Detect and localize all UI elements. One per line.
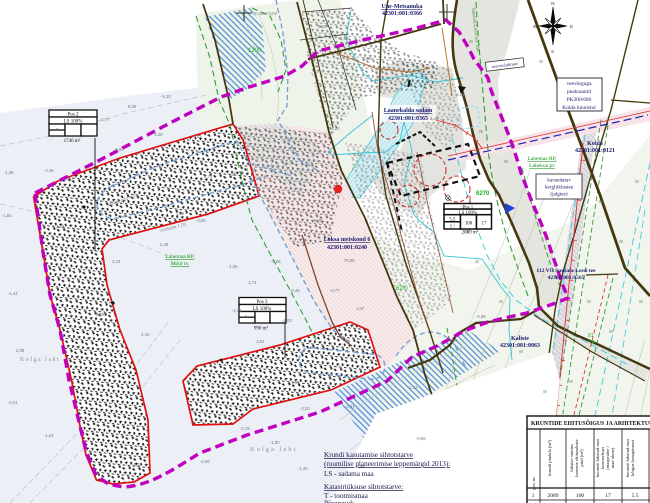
svg-text:2,48: 2,48	[430, 116, 439, 121]
svg-text:S: S	[551, 49, 554, 54]
svg-text:-4,03: -4,03	[282, 318, 292, 323]
svg-text:-1,80: -1,80	[270, 440, 280, 445]
svg-text:17: 17	[482, 222, 487, 227]
svg-text:-2,06: -2,06	[200, 459, 210, 464]
svg-text:Krundi kasutamise sihtotstarve: Krundi kasutamise sihtotstarve	[324, 451, 413, 459]
svg-text:-0,86: -0,86	[271, 259, 281, 264]
svg-text:Kaliste: Kaliste	[511, 336, 529, 342]
svg-text:-2,74: -2,74	[247, 280, 257, 285]
svg-text:2,48: 2,48	[160, 242, 169, 247]
svg-text:-4,28: -4,28	[153, 132, 163, 137]
svg-text:Uue-Metsanuka: Uue-Metsanuka	[381, 4, 422, 10]
svg-text:-4,04: -4,04	[302, 345, 312, 350]
svg-text:5,5: 5,5	[449, 218, 456, 223]
svg-text:-1,10: -1,10	[140, 332, 150, 337]
svg-text:-4,01: -4,01	[255, 339, 265, 344]
svg-text:-3,60: -3,60	[114, 147, 124, 152]
svg-text:(ruumilise planeerimise leppem: (ruumilise planeerimise leppemärgid 2013…	[324, 460, 450, 468]
svg-text:E: E	[570, 24, 573, 29]
svg-text:6,02: 6,02	[318, 24, 327, 29]
svg-text:112 VO Suusala-Leesi tee: 112 VO Suusala-Leesi tee	[536, 268, 596, 274]
svg-text:42301:001:0365: 42301:001:0365	[388, 116, 428, 122]
svg-text:17: 17	[605, 493, 611, 499]
svg-text:1,05: 1,05	[176, 211, 185, 216]
svg-text:-4,44: -4,44	[132, 462, 142, 467]
svg-text:-0,86: -0,86	[362, 56, 372, 61]
svg-text:-4,02: -4,02	[64, 177, 74, 182]
svg-text:krundi pindala (m²): krundi pindala (m²)	[547, 440, 552, 476]
svg-text:- 5,10: - 5,10	[160, 94, 171, 99]
svg-text:-2,78: -2,78	[240, 426, 250, 431]
svg-text:2,23: 2,23	[112, 259, 121, 264]
svg-text:kavandatav: kavandatav	[547, 178, 571, 184]
svg-text:70,05: 70,05	[344, 258, 355, 263]
svg-text:-1,30: -1,30	[298, 466, 308, 471]
svg-text:veevõrguga: veevõrguga	[566, 81, 592, 87]
svg-text:4,05: 4,05	[96, 312, 105, 317]
svg-text:kergliiklustee: kergliiklustee	[545, 185, 574, 191]
svg-text:Lahemaa RP,: Lahemaa RP,	[527, 156, 557, 162]
svg-text:2089 m²: 2089 m²	[462, 230, 479, 236]
svg-text:-2,46: -2,46	[44, 168, 54, 173]
svg-text:-4,22: -4,22	[330, 126, 340, 131]
svg-text:-1,44: -1,44	[8, 291, 18, 296]
svg-text:1: 1	[532, 493, 535, 499]
svg-text:2,08: 2,08	[16, 348, 25, 353]
svg-text:42301:001:0240: 42301:001:0240	[327, 245, 367, 251]
svg-text:kõrgus (maapinnast: kõrgus (maapinnast	[630, 439, 635, 476]
svg-text:-0,46: -0,46	[290, 288, 300, 293]
svg-text:Müür tv.: Müür tv.	[171, 261, 191, 267]
svg-text:1 /: 1 /	[450, 225, 456, 230]
svg-text:6,46: 6,46	[314, 218, 323, 223]
svg-text:pos. nr.: pos. nr.	[531, 476, 536, 489]
svg-text:42301:001:0366: 42301:001:0366	[382, 11, 422, 17]
svg-text:-1,83: -1,83	[352, 152, 362, 157]
svg-text:5.5: 5.5	[632, 493, 639, 499]
svg-text:2,75: 2,75	[204, 174, 213, 179]
svg-text:1,07: 1,07	[356, 306, 365, 311]
svg-text:pind (m²): pind (m²)	[579, 449, 584, 467]
svg-text:Loksa metskond 6: Loksa metskond 6	[324, 237, 371, 243]
svg-text:Laanekalda sadam: Laanekalda sadam	[384, 108, 433, 114]
svg-text:Piirangud:: Piirangud:	[324, 500, 354, 503]
svg-text:1200: 1200	[248, 48, 262, 54]
svg-text:N: N	[551, 1, 554, 6]
svg-text:100: 100	[576, 493, 585, 499]
svg-text:-0,41: -0,41	[8, 400, 18, 405]
svg-text:-3,02: -3,02	[448, 338, 458, 343]
svg-text:-2,77: -2,77	[100, 117, 110, 122]
svg-text:Kolda: Kolda	[587, 141, 603, 147]
svg-text:-0,77: -0,77	[330, 288, 340, 293]
svg-text:-0,68: -0,68	[416, 436, 426, 441]
svg-text:PK300/600: PK300/600	[567, 97, 592, 103]
svg-text:8,05: 8,05	[128, 104, 137, 109]
svg-text:KRUNTIDE EHITUSÕIGUS JA ARHITE: KRUNTIDE EHITUSÕIGUS JA ARHITEKTUUR	[531, 419, 650, 427]
svg-text:Kolga laht: Kolga laht	[20, 357, 60, 363]
svg-text:-1,33: -1,33	[408, 385, 418, 390]
svg-text:-1,64: -1,64	[44, 433, 54, 438]
svg-text:42301:001:0063: 42301:001:0063	[500, 343, 540, 349]
svg-text:-1,05: -1,05	[290, 380, 300, 385]
svg-text:-0,98: -0,98	[476, 314, 486, 319]
svg-text:peakraanid: peakraanid	[567, 89, 591, 95]
svg-text:LS 100%: LS 100%	[64, 120, 83, 125]
svg-text:2,23: 2,23	[56, 224, 65, 229]
svg-text:maa-alune): maa-alune)	[610, 447, 615, 468]
svg-text:-3,20: -3,20	[300, 406, 310, 411]
svg-text:4,93: 4,93	[340, 36, 349, 41]
svg-text:Pos 1: Pos 1	[462, 205, 473, 210]
svg-text:6270: 6270	[476, 191, 490, 197]
svg-text:X=6007100: X=6007100	[254, 11, 278, 16]
svg-text:LS 100%: LS 100%	[253, 307, 272, 312]
svg-text:-2,44: -2,44	[232, 308, 242, 313]
svg-text:Pos 2: Pos 2	[68, 113, 79, 118]
svg-text:74: 74	[589, 340, 595, 346]
svg-text:Kolga laht: Kolga laht	[250, 446, 297, 453]
svg-text:(jalgtee): (jalgtee)	[550, 191, 568, 198]
svg-text:Pos 3: Pos 3	[257, 300, 268, 305]
svg-text:-4,01: -4,01	[455, 92, 465, 97]
svg-text:-2,31: -2,31	[345, 404, 355, 409]
svg-text:Lahekua pv: Lahekua pv	[529, 163, 555, 169]
svg-text:-1,36: -1,36	[4, 170, 14, 175]
svg-text:-3,43: -3,43	[192, 134, 202, 139]
svg-text:Kolda kinnistul: Kolda kinnistul	[562, 105, 596, 111]
svg-text:81: 81	[588, 333, 594, 339]
svg-text:LS 100%: LS 100%	[459, 211, 477, 216]
svg-text:-1,08: -1,08	[228, 264, 238, 269]
svg-text:2089: 2089	[547, 493, 558, 499]
svg-text:Lahemaa RP,: Lahemaa RP,	[165, 254, 195, 260]
svg-text:Katastriüksuse sihtotstarve:: Katastriüksuse sihtotstarve:	[324, 483, 403, 491]
svg-text:LS - sadama maa: LS - sadama maa	[324, 470, 375, 478]
svg-text:-1,55: -1,55	[2, 213, 12, 218]
svg-text:62/0: 62/0	[396, 286, 408, 292]
svg-text:42301:001:0121: 42301:001:0121	[575, 148, 615, 154]
svg-text:990 m²: 990 m²	[254, 326, 269, 332]
svg-text:1746 m²: 1746 m²	[64, 138, 81, 144]
svg-text:-2,05: -2,05	[196, 218, 206, 223]
svg-text:42301:001:0565: 42301:001:0565	[548, 275, 585, 281]
svg-text:100: 100	[465, 222, 473, 227]
